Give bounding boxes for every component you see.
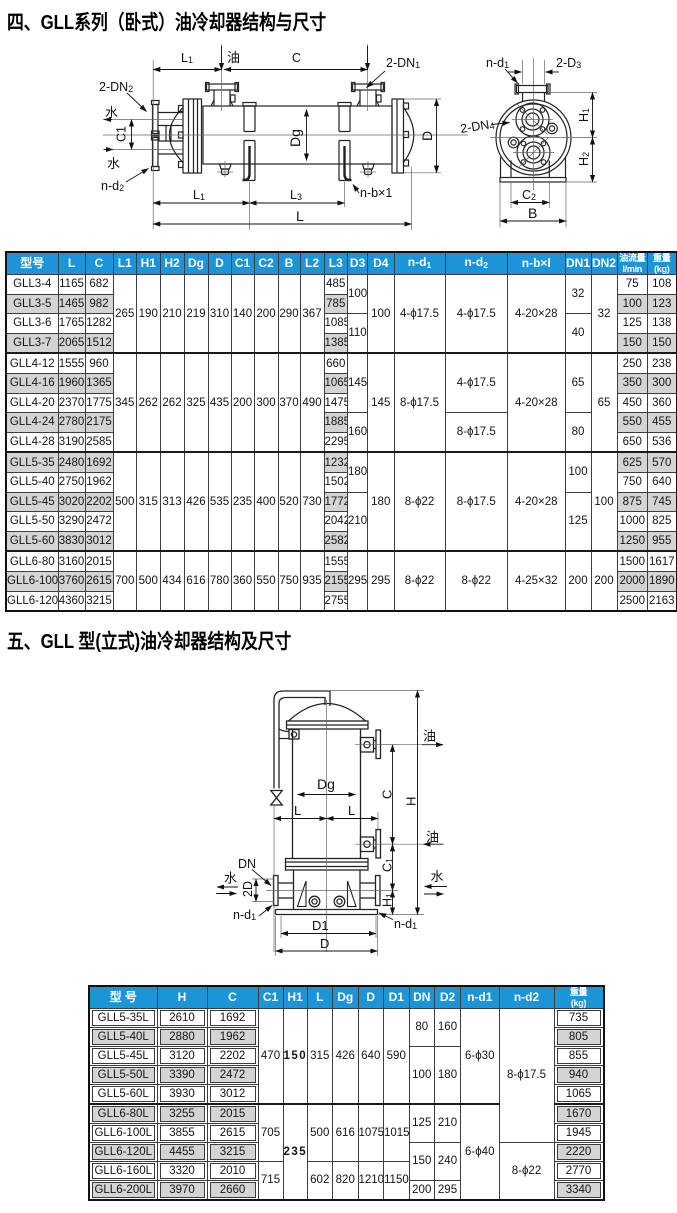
svg-text:2-DN4: 2-DN4 [459,117,495,136]
svg-text:L: L [296,208,304,224]
svg-text:H1: H1 [381,893,395,907]
svg-text:Dg: Dg [317,776,335,792]
svg-text:n-d1: n-d1 [394,917,417,931]
svg-text:D1: D1 [312,918,329,933]
svg-text:水: 水 [105,105,118,120]
svg-text:2D: 2D [241,881,255,897]
svg-text:Dg: Dg [287,129,303,147]
svg-text:L: L [348,803,355,818]
svg-text:L1: L1 [181,51,193,65]
svg-text:D: D [419,131,435,141]
svg-text:L1: L1 [193,188,205,202]
svg-text:n-d1: n-d1 [233,908,256,922]
svg-text:C1: C1 [115,126,129,142]
svg-text:D: D [320,936,329,951]
svg-text:2-DN1: 2-DN1 [386,56,420,70]
svg-text:油: 油 [227,50,240,65]
svg-text:油: 油 [426,830,439,845]
svg-text:水: 水 [431,869,444,884]
svg-text:L: L [294,803,301,818]
svg-text:H: H [404,797,419,806]
svg-text:C: C [292,51,301,65]
svg-text:L3: L3 [290,188,302,202]
svg-text:B: B [528,205,537,221]
svg-text:C1: C1 [381,858,395,872]
svg-text:n-d2: n-d2 [101,179,124,193]
svg-text:n-d1: n-d1 [486,56,509,70]
svg-text:C: C [380,790,395,799]
svg-text:H1: H1 [577,108,591,122]
svg-text:油: 油 [423,729,436,744]
svg-text:C2: C2 [522,188,536,202]
svg-text:水: 水 [107,156,120,171]
svg-text:2-D3: 2-D3 [556,56,581,70]
svg-text:n-b×1: n-b×1 [360,186,392,200]
svg-text:2-DN2: 2-DN2 [99,80,133,94]
svg-text:DN: DN [238,857,256,871]
svg-text:水: 水 [224,871,237,886]
svg-text:H2: H2 [577,152,591,166]
